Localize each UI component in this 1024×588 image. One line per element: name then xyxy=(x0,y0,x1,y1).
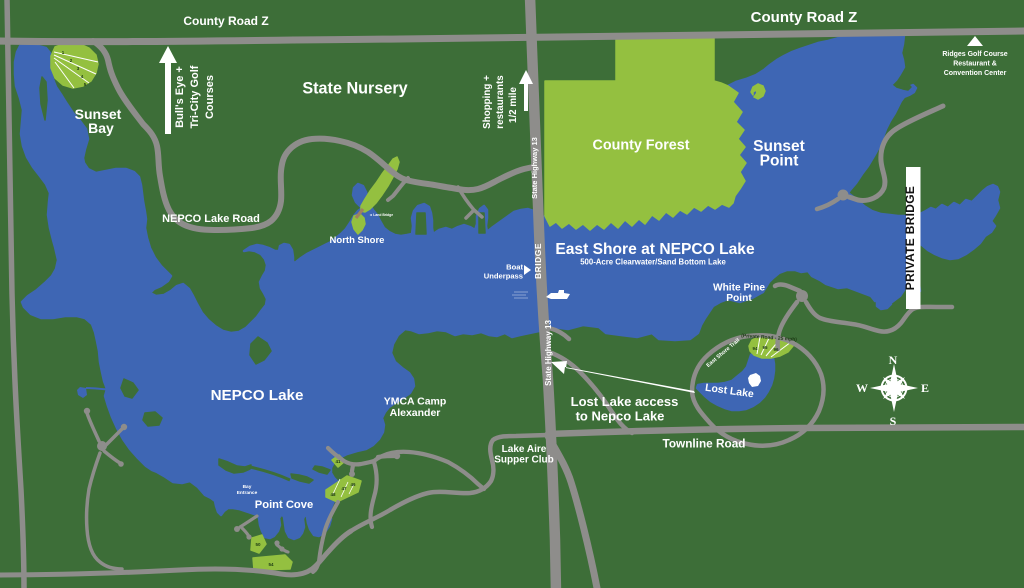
svg-text:50: 50 xyxy=(255,542,261,547)
svg-text:Convention Center: Convention Center xyxy=(944,70,1007,77)
svg-text:94: 94 xyxy=(752,346,758,351)
svg-text:Tri-City Golf: Tri-City Golf xyxy=(189,65,201,128)
svg-text:46: 46 xyxy=(350,482,356,487)
svg-text:to Nepco Lake: to Nepco Lake xyxy=(576,409,665,424)
svg-text:Bay: Bay xyxy=(88,120,114,136)
svg-text:1/2 mile: 1/2 mile xyxy=(508,86,519,122)
svg-text:◄ Land Bridge: ◄ Land Bridge xyxy=(369,213,393,217)
svg-text:North Shore: North Shore xyxy=(330,235,385,246)
svg-text:YMCA Camp: YMCA Camp xyxy=(384,396,447,408)
svg-text:County Forest: County Forest xyxy=(593,138,690,154)
svg-text:500-Acre Clearwater/Sand Botto: 500-Acre Clearwater/Sand Bottom Lake xyxy=(580,258,726,267)
svg-text:Shopping +: Shopping + xyxy=(482,75,493,129)
svg-text:Point: Point xyxy=(726,293,752,304)
svg-text:Lake Aire: Lake Aire xyxy=(502,444,547,455)
svg-text:54: 54 xyxy=(268,562,274,567)
svg-text:County Road Z: County Road Z xyxy=(751,9,858,26)
svg-text:Restaurant &: Restaurant & xyxy=(953,61,997,68)
svg-text:State Highway 13: State Highway 13 xyxy=(544,320,553,386)
svg-text:White Pine: White Pine xyxy=(713,283,765,294)
svg-text:96: 96 xyxy=(773,347,779,352)
svg-text:Townline Road: Townline Road xyxy=(662,437,745,451)
svg-text:State Highway 13: State Highway 13 xyxy=(530,137,539,199)
svg-text:41: 41 xyxy=(335,459,341,464)
svg-text:State Nursery: State Nursery xyxy=(302,80,407,98)
svg-text:Supper Club: Supper Club xyxy=(494,455,553,466)
svg-text:NEPCO Lake: NEPCO Lake xyxy=(211,387,304,404)
svg-text:Ridges Golf Course: Ridges Golf Course xyxy=(942,51,1007,58)
svg-text:East Shore at NEPCO Lake: East Shore at NEPCO Lake xyxy=(555,241,755,258)
svg-text:restaurants: restaurants xyxy=(495,75,506,129)
svg-text:PRIVATE BRIDGE: PRIVATE BRIDGE xyxy=(903,186,917,290)
svg-text:N: N xyxy=(889,353,898,367)
svg-text:Point: Point xyxy=(760,153,799,170)
svg-text:Bay: Bay xyxy=(243,484,252,490)
svg-text:Boat: Boat xyxy=(506,263,523,272)
svg-text:Underpass: Underpass xyxy=(484,272,523,281)
svg-text:NEPCO Lake Road: NEPCO Lake Road xyxy=(162,213,260,225)
svg-text:E: E xyxy=(921,381,929,395)
svg-text:48: 48 xyxy=(330,492,336,497)
svg-text:Bull's Eye +: Bull's Eye + xyxy=(174,66,186,128)
svg-text:Alexander: Alexander xyxy=(390,407,441,419)
svg-text:W: W xyxy=(856,381,868,395)
svg-text:95: 95 xyxy=(762,345,768,350)
svg-text:BRIDGE: BRIDGE xyxy=(533,243,543,279)
svg-text:S: S xyxy=(890,414,897,428)
svg-text:47: 47 xyxy=(341,486,347,491)
svg-text:Courses: Courses xyxy=(204,75,216,119)
svg-text:Lost Lake access: Lost Lake access xyxy=(571,394,679,409)
svg-text:County Road Z: County Road Z xyxy=(183,14,268,28)
svg-text:Point Cove: Point Cove xyxy=(255,499,313,511)
svg-text:Entrance: Entrance xyxy=(237,490,258,496)
